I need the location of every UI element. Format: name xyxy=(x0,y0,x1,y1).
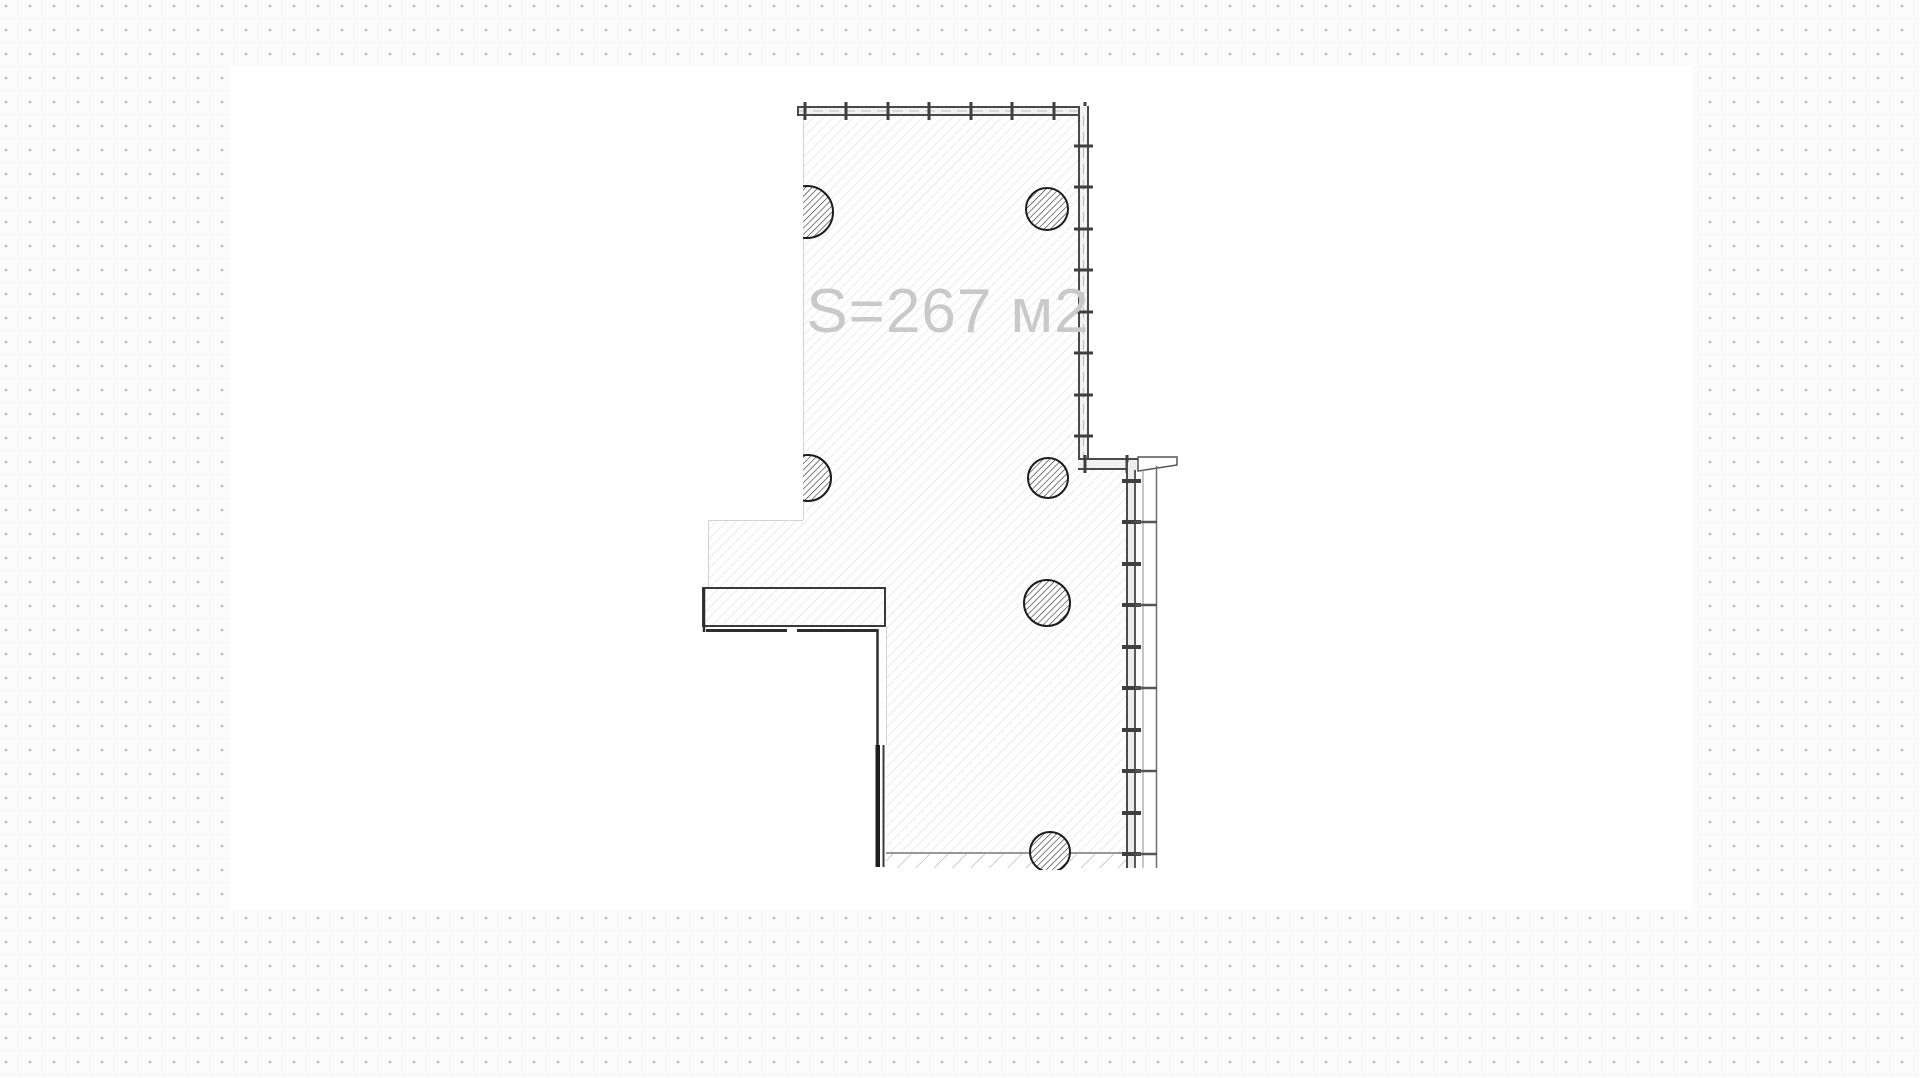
design-tool-workspace[interactable]: { "workspace": { "background_color": "#f… xyxy=(0,0,1920,1078)
canvas[interactable] xyxy=(230,66,1692,910)
